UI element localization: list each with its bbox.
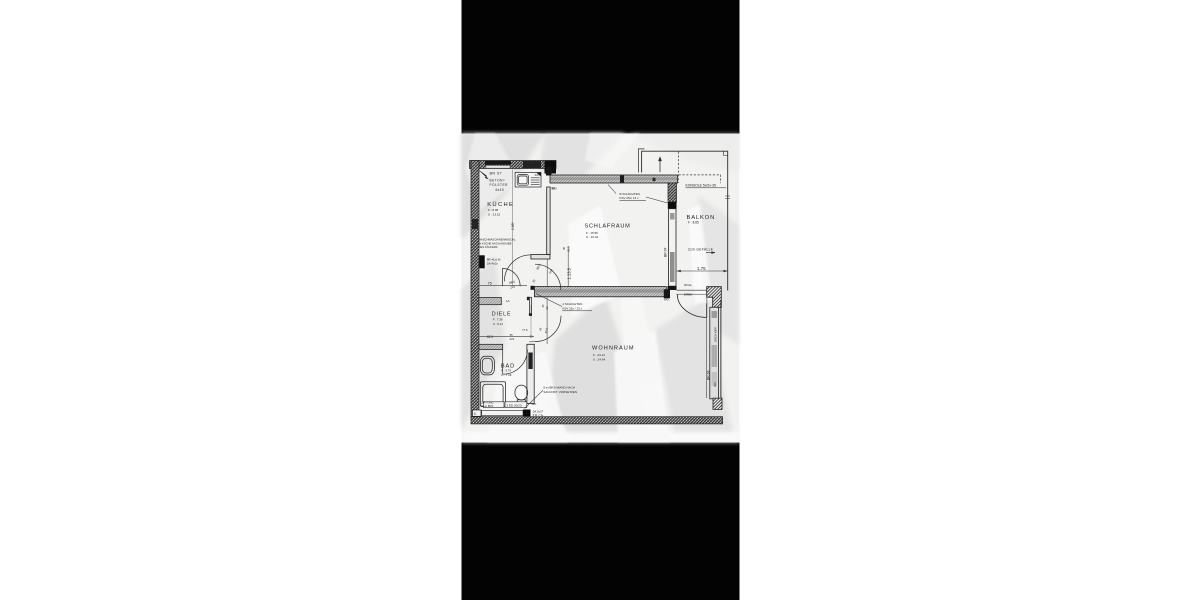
svg-text:5 M ↗ ‰: 5 M ↗ ‰ — [533, 413, 544, 417]
svg-text:BR 69: BR 69 — [706, 370, 710, 380]
svg-text:75: 75 — [488, 282, 492, 286]
svg-text:2.85⁵: 2.85⁵ — [511, 221, 515, 230]
svg-text:DA 4x/2x: DA 4x/2x — [487, 262, 499, 266]
svg-text:üb-er BKS: üb-er BKS — [481, 404, 494, 408]
svg-text:U : 9.14: U : 9.14 — [493, 322, 504, 326]
svg-text:62: 62 — [545, 306, 549, 310]
svg-text:IN KÜCHE NACH ANGABE: IN KÜCHE NACH ANGABE — [479, 241, 512, 245]
svg-text:WO: WO — [532, 402, 538, 406]
svg-text:ROLL: ROLL — [684, 283, 692, 287]
svg-text:DA 2x/27: DA 2x/27 — [533, 410, 544, 414]
svg-text:DREH: DREH — [684, 293, 693, 297]
svg-text:0: 0 — [474, 412, 476, 416]
svg-text:2cm GEFÄLLE: 2cm GEFÄLLE — [688, 248, 714, 252]
svg-text:F : 15.95: F : 15.95 — [586, 231, 598, 235]
svg-text:POLSTER: POLSTER — [490, 183, 509, 187]
svg-text:4 SCHICHTEN: 4 SCHICHTEN — [562, 302, 582, 306]
svg-text:DREH-KIPP: DREH-KIPP — [714, 327, 718, 342]
svg-text:35: 35 — [510, 333, 514, 337]
svg-text:82.5: 82.5 — [487, 335, 493, 339]
svg-text:WO: WO — [664, 298, 670, 302]
svg-text:U : 16.44: U : 16.44 — [586, 235, 599, 239]
svg-text:BR 97: BR 97 — [490, 172, 503, 176]
svg-text:35: 35 — [530, 335, 534, 339]
svg-text:SAN-INST. VORSETZEN: SAN-INST. VORSETZEN — [543, 390, 577, 394]
svg-text:U : 13.15: U : 13.15 — [488, 212, 501, 216]
svg-text:1.13.5: 1.13.5 — [566, 267, 571, 279]
svg-text:3 ED 20/20: 3 ED 20/20 — [507, 403, 522, 407]
svg-text:LA: LA — [506, 299, 510, 303]
svg-text:6x45: 6x45 — [496, 188, 505, 192]
svg-text:U : 24.64: U : 24.64 — [593, 358, 606, 362]
svg-text:B SCHICHTEN: B SCHICHTEN — [620, 192, 640, 196]
svg-text:F : 8.85: F : 8.85 — [688, 221, 699, 225]
svg-text:LÜFTUNG: LÜFTUNG — [481, 400, 494, 404]
svg-text:BETON=: BETON= — [490, 179, 506, 183]
svg-text:1.75: 1.75 — [697, 266, 706, 271]
svg-text:KSV 25x / 13 x: KSV 25x / 13 x — [562, 307, 582, 311]
svg-text:KÜCHE: KÜCHE — [487, 201, 514, 208]
svg-text:WOHNRAUM: WOHNRAUM — [592, 345, 635, 351]
svg-text:F : 24.14: F : 24.14 — [593, 353, 605, 357]
svg-text:KONSOLE 5x/2x-35: KONSOLE 5x/2x-35 — [686, 184, 716, 188]
svg-text:F : 3.74: F : 3.74 — [501, 369, 511, 373]
svg-text:SW: SW — [535, 173, 540, 177]
svg-text:90: 90 — [551, 186, 555, 190]
svg-text:DES KÄUFERS: DES KÄUFERS — [479, 245, 498, 249]
svg-text:U : 7.18: U : 7.18 — [501, 373, 512, 377]
svg-text:77.5: 77.5 — [522, 328, 528, 332]
svg-text:KSV 25x/ 13 x: KSV 25x/ 13 x — [620, 196, 640, 200]
svg-text:F : 7.38: F : 7.38 — [493, 317, 503, 321]
svg-text:81.5: 81.5 — [566, 246, 570, 252]
svg-text:2x9: 2x9 — [510, 337, 515, 341]
svg-text:SCHLAFRAUM: SCHLAFRAUM — [585, 224, 631, 230]
svg-text:WASCHMASCHINENANSCHL.: WASCHMASCHINENANSCHL. — [479, 238, 517, 242]
svg-text:MxN: MxN — [714, 382, 717, 387]
svg-text:BR 97: BR 97 — [663, 247, 667, 257]
